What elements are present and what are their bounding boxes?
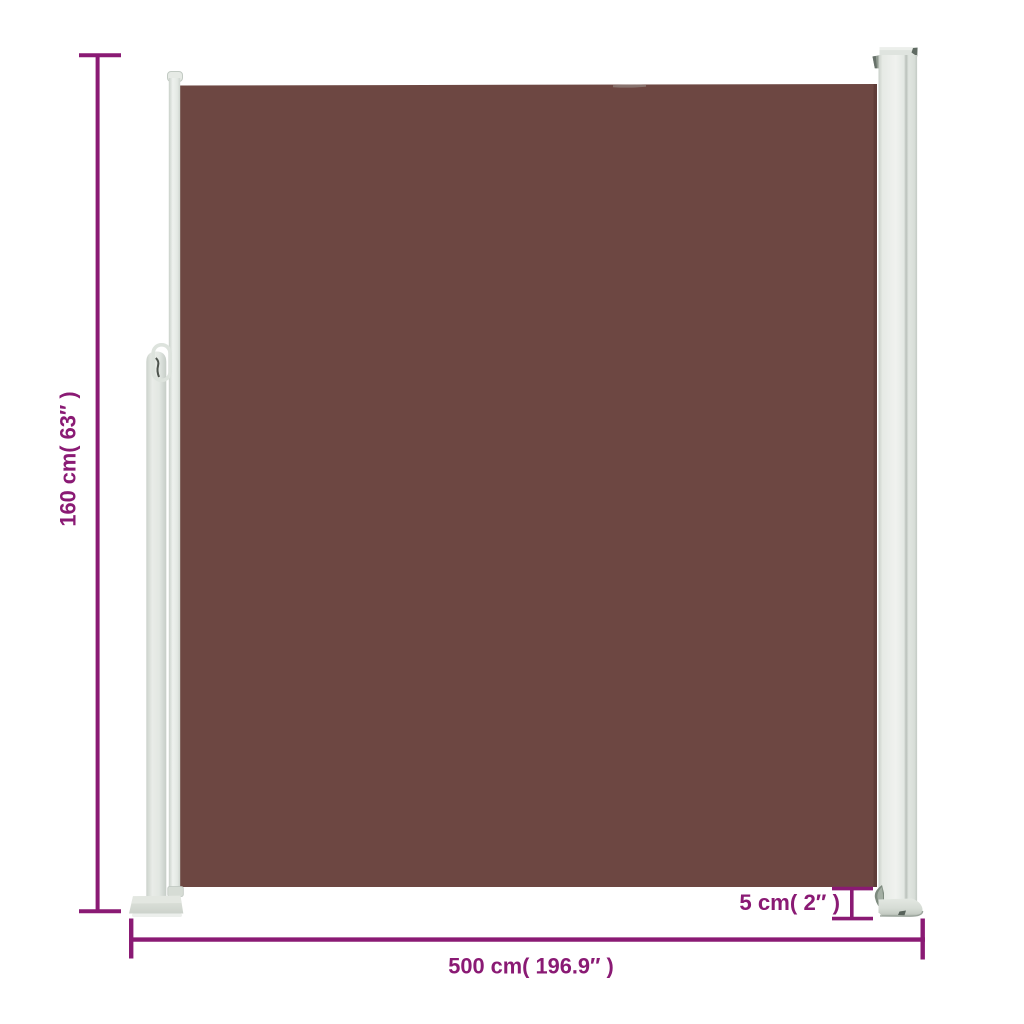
svg-text:5 cm( 2″ ): 5 cm( 2″ ) (739, 890, 840, 915)
svg-text:500 cm( 196.9″ ): 500 cm( 196.9″ ) (448, 954, 614, 979)
svg-text:160 cm( 63″ ): 160 cm( 63″ ) (56, 391, 81, 526)
